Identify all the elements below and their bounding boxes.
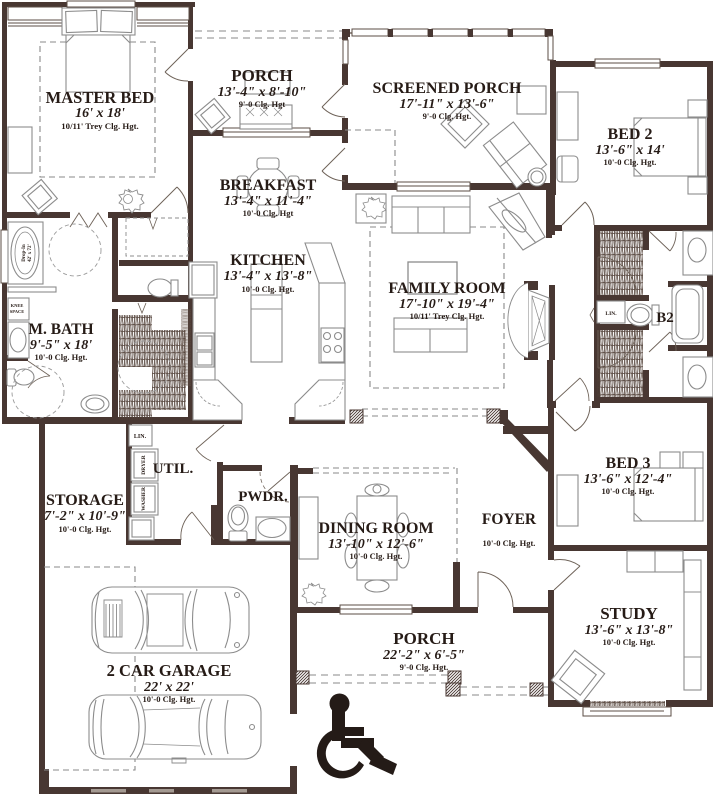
- svg-text:7'-2" x 10'-9": 7'-2" x 10'-9": [44, 509, 126, 524]
- svg-text:SPACE: SPACE: [10, 309, 24, 314]
- svg-text:10'-0 Clg. Hgt: 10'-0 Clg. Hgt: [243, 208, 294, 218]
- svg-text:13'-6" x 14': 13'-6" x 14': [595, 143, 664, 158]
- svg-text:9'-0 Clg. Hgt: 9'-0 Clg. Hgt: [239, 99, 286, 109]
- svg-text:STORAGE: STORAGE: [46, 492, 124, 509]
- svg-text:10'-0 Clg. Hgt.: 10'-0 Clg. Hgt.: [59, 524, 112, 534]
- svg-text:22' x 22': 22' x 22': [143, 680, 194, 695]
- svg-text:KITCHEN: KITCHEN: [230, 252, 306, 269]
- svg-text:MASTER BED: MASTER BED: [46, 88, 155, 107]
- svg-text:BREAKFAST: BREAKFAST: [220, 177, 317, 194]
- svg-text:9'-5" x 18': 9'-5" x 18': [30, 338, 92, 353]
- svg-text:PWDR.: PWDR.: [238, 489, 288, 505]
- svg-text:WASHER: WASHER: [141, 486, 147, 511]
- svg-text:13'-4" x 13'-8": 13'-4" x 13'-8": [224, 269, 313, 284]
- svg-text:STUDY: STUDY: [600, 604, 658, 623]
- svg-text:13'-10" x 12'-6": 13'-10" x 12'-6": [328, 537, 424, 552]
- svg-text:10'-0 Clg. Hgt.: 10'-0 Clg. Hgt.: [604, 157, 657, 167]
- svg-text:10/11' Trey Clg. Hgt.: 10/11' Trey Clg. Hgt.: [410, 311, 485, 321]
- svg-text:10'-0 Clg. Hgt.: 10'-0 Clg. Hgt.: [242, 284, 295, 294]
- svg-text:9'-0 Clg. Hgt.: 9'-0 Clg. Hgt.: [400, 662, 449, 672]
- svg-text:FOYER: FOYER: [482, 511, 537, 528]
- svg-text:13'-4" x 8'-10": 13'-4" x 8'-10": [218, 85, 307, 100]
- svg-text:BED 3: BED 3: [606, 455, 651, 472]
- svg-text:17'-10" x 19'-4": 17'-10" x 19'-4": [399, 297, 495, 312]
- svg-text:SCREENED PORCH: SCREENED PORCH: [373, 80, 522, 97]
- svg-text:LIN.: LIN.: [134, 434, 147, 440]
- svg-text:FAMILY ROOM: FAMILY ROOM: [388, 280, 505, 297]
- svg-text:13'-6" x 13'-8": 13'-6" x 13'-8": [585, 623, 674, 638]
- svg-text:UTIL.: UTIL.: [153, 461, 194, 477]
- svg-text:13'-4" x 11'-4": 13'-4" x 11'-4": [224, 194, 312, 209]
- svg-text:9'-0 Clg. Hgt.: 9'-0 Clg. Hgt.: [423, 111, 472, 121]
- svg-text:10'-0 Clg. Hgt.: 10'-0 Clg. Hgt.: [483, 538, 536, 548]
- svg-text:13'-6" x 12'-4": 13'-6" x 12'-4": [584, 472, 673, 487]
- svg-text:10'-0 Clg. Hgt.: 10'-0 Clg. Hgt.: [35, 352, 88, 362]
- svg-text:Drop-In: Drop-In: [22, 244, 27, 262]
- svg-text:M. BATH: M. BATH: [28, 321, 93, 338]
- svg-text:16' x 18': 16' x 18': [75, 106, 125, 121]
- svg-text:10'-0 Clg. Hgt.: 10'-0 Clg. Hgt.: [603, 637, 656, 647]
- svg-text:10/11' Trey Clg. Hgt.: 10/11' Trey Clg. Hgt.: [61, 121, 138, 131]
- svg-text:42' x 72': 42' x 72': [28, 244, 33, 262]
- svg-text:PORCH: PORCH: [231, 66, 292, 85]
- svg-text:DRYER: DRYER: [141, 454, 147, 474]
- svg-text:10'-0 Clg. Hgt.: 10'-0 Clg. Hgt.: [350, 551, 403, 561]
- svg-text:DINING ROOM: DINING ROOM: [318, 520, 433, 537]
- svg-text:10'-0 Clg. Hgt.: 10'-0 Clg. Hgt.: [143, 694, 196, 704]
- svg-text:10'-0 Clg. Hgt.: 10'-0 Clg. Hgt.: [602, 486, 655, 496]
- svg-text:PORCH: PORCH: [393, 629, 454, 648]
- svg-text:LIN.: LIN.: [605, 311, 617, 317]
- svg-text:22'-2" x 6'-5": 22'-2" x 6'-5": [382, 648, 465, 663]
- svg-text:BED 2: BED 2: [608, 126, 653, 143]
- svg-text:B2: B2: [656, 310, 674, 326]
- svg-text:KNEE: KNEE: [11, 303, 24, 308]
- svg-text:17'-11" x 13'-6": 17'-11" x 13'-6": [400, 97, 495, 112]
- svg-text:2 CAR GARAGE: 2 CAR GARAGE: [107, 661, 232, 680]
